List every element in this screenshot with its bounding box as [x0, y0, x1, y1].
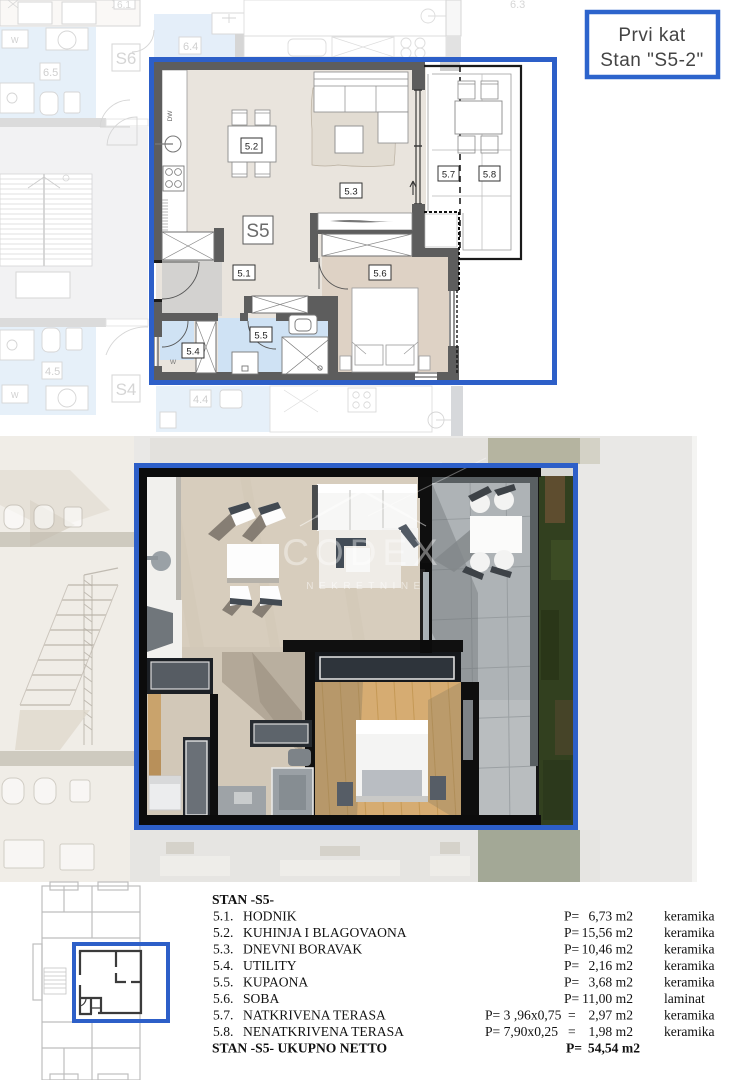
svg-text:P=: P= [564, 909, 579, 924]
svg-text:5.4: 5.4 [186, 347, 199, 358]
svg-text:5.8.: 5.8. [213, 1024, 233, 1039]
svg-text:5.2: 5.2 [245, 142, 258, 153]
svg-text:=: = [568, 1024, 576, 1039]
svg-text:54,54 m2: 54,54 m2 [588, 1041, 640, 1056]
svg-text:=: = [568, 1008, 576, 1023]
svg-text:6.4: 6.4 [183, 41, 198, 53]
svg-text:P=: P= [564, 975, 579, 990]
svg-text:keramika: keramika [664, 909, 715, 924]
svg-text:5.1: 5.1 [237, 269, 250, 280]
svg-text:6.3: 6.3 [510, 0, 525, 11]
svg-text:UTILITY: UTILITY [243, 958, 297, 973]
svg-text:KUHINJA I BLAGOVAONA: KUHINJA I BLAGOVAONA [243, 925, 407, 940]
svg-text:5.4.: 5.4. [213, 958, 233, 973]
svg-text:STAN -S5- UKUPNO NETTO: STAN -S5- UKUPNO NETTO [212, 1041, 387, 1056]
svg-text:P=: P= [564, 958, 579, 973]
svg-text:Prvi kat: Prvi kat [618, 25, 686, 46]
svg-text:DNEVNI BORAVAK: DNEVNI BORAVAK [243, 942, 362, 957]
svg-text:2,16 m2: 2,16 m2 [588, 958, 633, 973]
svg-text:5.5: 5.5 [254, 331, 267, 342]
svg-text:P= 3 ,96x0,75: P= 3 ,96x0,75 [485, 1008, 562, 1023]
svg-text:6.5: 6.5 [43, 67, 58, 79]
svg-text:5.7: 5.7 [442, 170, 455, 181]
svg-text:KUPAONA: KUPAONA [243, 975, 308, 990]
svg-text:10,46 m2: 10,46 m2 [582, 942, 634, 957]
svg-text:4.5: 4.5 [45, 366, 60, 378]
svg-text:2,97 m2: 2,97 m2 [588, 1008, 633, 1023]
svg-text:5.3.: 5.3. [213, 942, 233, 957]
svg-text:Stan "S5-2": Stan "S5-2" [600, 50, 704, 71]
svg-text:5.5.: 5.5. [213, 975, 233, 990]
svg-text:keramika: keramika [664, 1024, 715, 1039]
svg-text:keramika: keramika [664, 958, 715, 973]
svg-text:keramika: keramika [664, 975, 715, 990]
svg-text:P=: P= [564, 942, 579, 957]
svg-text:keramika: keramika [664, 925, 715, 940]
svg-text:W: W [11, 36, 19, 45]
svg-text:NATKRIVENA TERASA: NATKRIVENA TERASA [243, 1008, 386, 1023]
svg-text:NEKRETNINE: NEKRETNINE [306, 581, 425, 592]
svg-text:5.6.: 5.6. [213, 991, 233, 1006]
svg-text:5.8: 5.8 [483, 170, 496, 181]
svg-text:W: W [170, 359, 177, 366]
svg-text:P=: P= [564, 925, 579, 940]
svg-text:6,73 m2: 6,73 m2 [588, 909, 633, 924]
svg-text:5.7.: 5.7. [213, 1008, 233, 1023]
svg-text:DW: DW [167, 110, 174, 122]
svg-text:15,56 m2: 15,56 m2 [582, 925, 634, 940]
svg-text:keramika: keramika [664, 1008, 715, 1023]
svg-text:P=: P= [564, 991, 579, 1006]
svg-text:keramika: keramika [664, 942, 715, 957]
svg-text:S4: S4 [116, 380, 137, 399]
svg-text:P=: P= [566, 1041, 582, 1056]
svg-text:HODNIK: HODNIK [243, 909, 297, 924]
svg-text:1,98 m2: 1,98 m2 [588, 1024, 633, 1039]
svg-text:5.3: 5.3 [344, 187, 357, 198]
svg-text:CODEX: CODEX [282, 532, 444, 573]
svg-text:SOBA: SOBA [243, 991, 279, 1006]
svg-text:6.1: 6.1 [117, 0, 131, 11]
svg-text:S5: S5 [246, 221, 269, 242]
svg-text:5.2.: 5.2. [213, 925, 233, 940]
svg-text:STAN -S5-: STAN -S5- [212, 892, 275, 907]
svg-text:5.6: 5.6 [373, 269, 386, 280]
svg-text:4.4: 4.4 [193, 394, 208, 406]
svg-text:P= 7,90x0,25: P= 7,90x0,25 [485, 1024, 558, 1039]
svg-text:NENATKRIVENA TERASA: NENATKRIVENA TERASA [243, 1024, 404, 1039]
svg-text:W: W [11, 391, 19, 400]
svg-text:laminat: laminat [664, 991, 705, 1006]
svg-text:11,00 m2: 11,00 m2 [582, 991, 633, 1006]
svg-text:3,68 m2: 3,68 m2 [588, 975, 633, 990]
svg-text:5.1.: 5.1. [213, 909, 233, 924]
